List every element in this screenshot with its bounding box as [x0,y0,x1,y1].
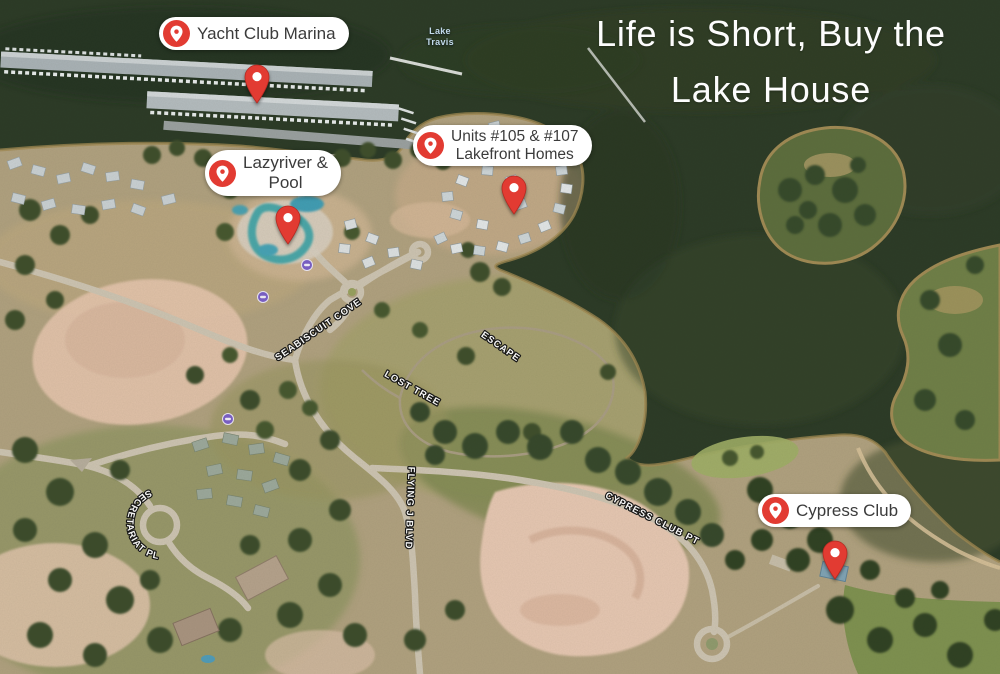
callout-line: Cypress Club [796,501,898,521]
headline-line-1: Life is Short, Buy the [545,6,997,62]
place-pin-icon [209,160,236,187]
callout-text: Cypress Club [796,501,898,521]
place-pin-icon [762,497,789,524]
callout-yacht-club-marina: Yacht Club Marina [159,17,349,50]
headline: Life is Short, Buy the Lake House [545,6,997,118]
callout-text: Units #105 & #107 Lakefront Homes [451,128,579,163]
lake-house-map-flyer: SEABISCUIT COVE ESCAPE LOST TREE FLYING … [0,0,1000,674]
callout-lazyriver-pool: Lazyriver & Pool [205,150,341,196]
callout-text: Yacht Club Marina [197,24,336,44]
callout-line: Yacht Club Marina [197,24,336,44]
map-pin-yacht-club-marina [244,64,270,104]
callout-units-105-107: Units #105 & #107 Lakefront Homes [413,125,592,166]
place-pin-icon [163,20,190,47]
lake-travis-label: Lake Travis [408,26,472,48]
callout-line: Lakefront Homes [451,146,579,164]
place-pin-icon [417,132,444,159]
lake-label-line-1: Lake [408,26,472,37]
lake-label-line-2: Travis [408,37,472,48]
headline-line-2: Lake House [545,62,997,118]
callout-text: Lazyriver & Pool [243,153,328,193]
map-pin-units-105-107 [501,175,527,215]
callout-line: Lazyriver & [243,153,328,173]
callout-line: Units #105 & #107 [451,128,579,146]
callout-line: Pool [243,173,328,193]
map-pin-cypress-club [822,540,848,580]
map-pin-lazyriver-pool [275,205,301,245]
callout-cypress-club: Cypress Club [758,494,911,527]
